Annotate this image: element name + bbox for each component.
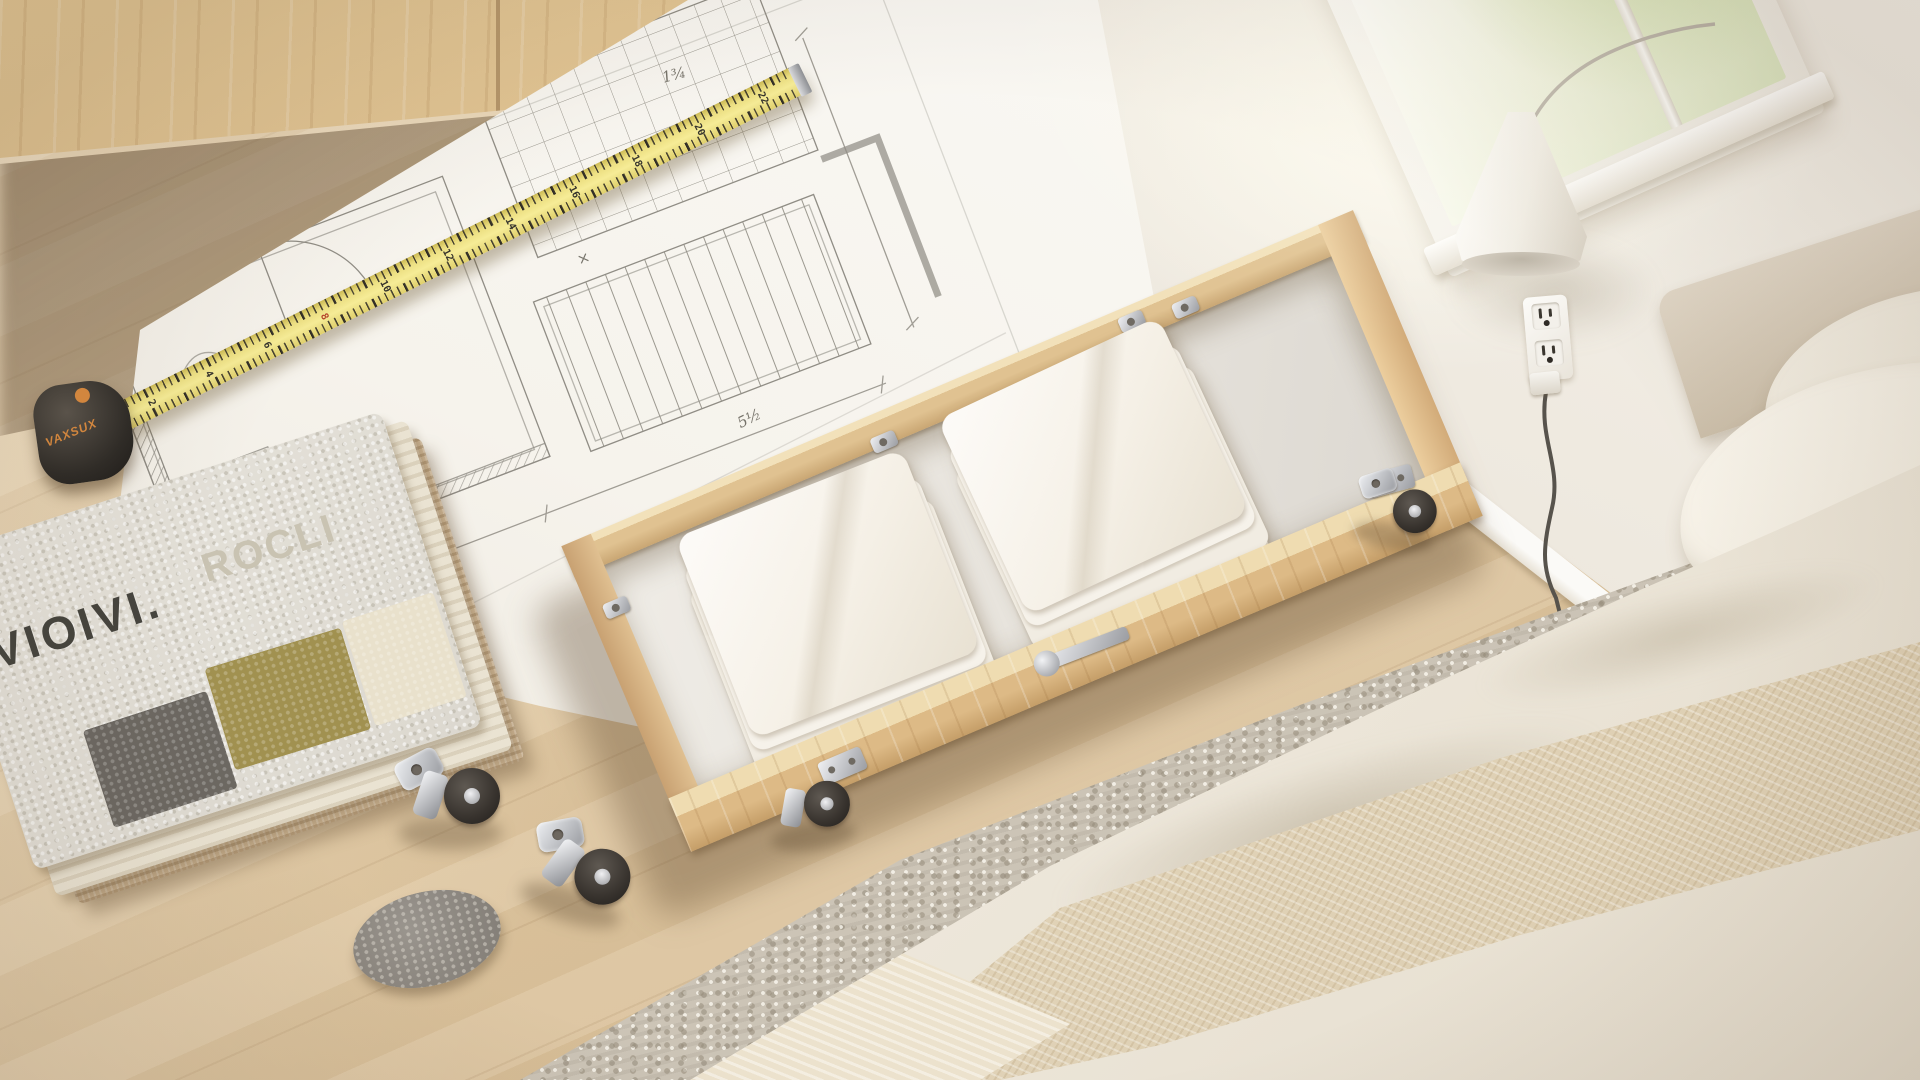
swatch-ghost-text: ROCLI [196,506,343,592]
tape-number: 20 [692,121,707,137]
tape-number-red: 8 [318,311,331,321]
outlet-socket [1534,339,1564,367]
tape-number: 14 [503,216,518,232]
tape-case-button [74,387,91,404]
outlet-slot [1548,309,1552,317]
tape-number: 10 [377,278,392,294]
power-plug [1529,370,1561,395]
tape-number: 22 [755,90,770,106]
outlet-slot [1538,308,1542,318]
tape-number: 2 [145,397,158,407]
tape-number: 18 [629,153,644,169]
plan-annotation: × [574,248,592,269]
plan-annotation: 5½ [734,405,764,432]
bedroom-photo-scene: 3¼ ≈2'8 × 1¾ 5½ [0,0,1920,1080]
outlet-slot [1542,345,1546,355]
drawer-caster-wheel [757,763,867,866]
tape-case-brand: VAXSUX [43,416,99,449]
power-outlet [1522,294,1573,382]
lamp-shade-opening [1462,252,1580,276]
outlet-slot [1552,345,1556,353]
outlet-ground-hole [1543,320,1550,327]
drawer-caster-wheel [1344,467,1451,568]
swatch-olive-block [204,628,371,771]
tape-number: 16 [566,184,581,200]
outlet-ground-hole [1547,357,1554,364]
tape-number: 6 [260,340,273,350]
loose-caster-wheel [392,752,512,862]
tape-number: 4 [202,369,215,379]
caster-wheel-rubber [444,768,500,824]
outlet-socket [1531,302,1561,330]
caster-mounting-plate [1357,467,1398,500]
caster-fork [780,787,807,828]
tape-number: 12 [440,247,455,263]
swatch-grey-block [83,691,238,828]
caster-shadow [398,816,502,850]
swatch-brand-text: VIOIVI. [0,574,169,680]
